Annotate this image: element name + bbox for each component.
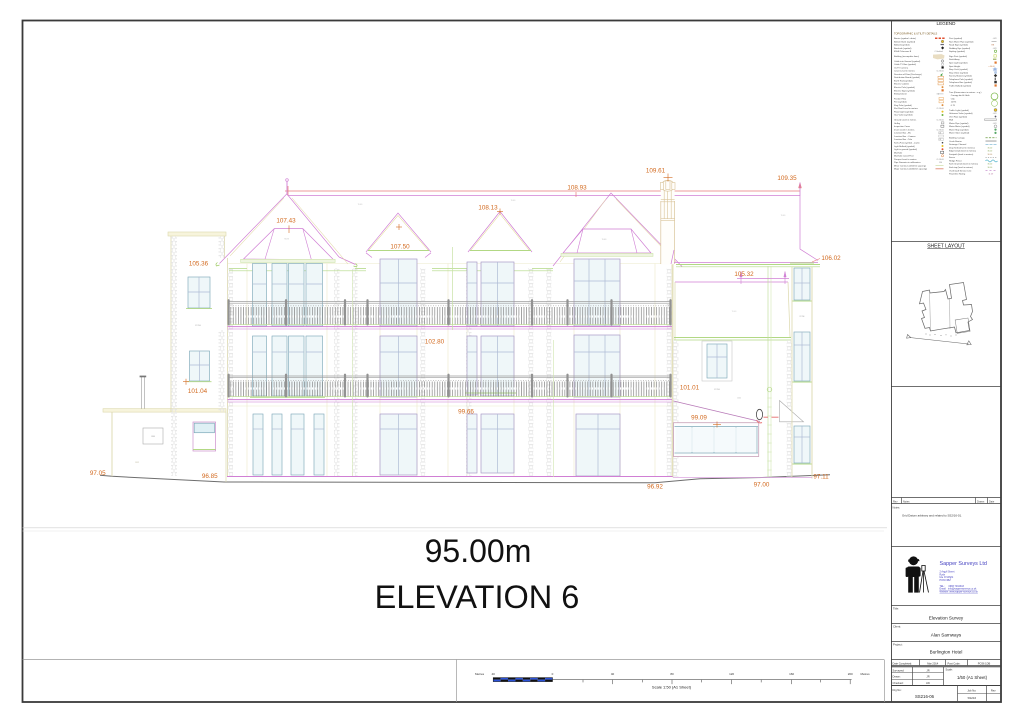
svg-text:Bottom Bank (symbol): Bottom Bank (symbol) <box>894 40 915 43</box>
svg-text:Junction Box - Tele: Junction Box - Tele <box>894 138 913 141</box>
svg-text:97.05: 97.05 <box>90 470 106 477</box>
svg-text:Kerb+Post (symbol - each): Kerb+Post (symbol - each) <box>894 142 920 145</box>
svg-text:Invert Level in metres: Invert Level in metres <box>894 128 914 131</box>
svg-text:Mar 2014: Mar 2014 <box>927 661 939 665</box>
svg-text:Water Stop (symbol): Water Stop (symbol) <box>949 128 969 131</box>
svg-text:Cover Level in metres: Cover Level in metres <box>894 70 915 73</box>
svg-text:36.00: 36.00 <box>988 151 993 153</box>
svg-text:Fence: Fence <box>949 157 956 159</box>
svg-text:Stop Valve (symbol): Stop Valve (symbol) <box>949 71 968 74</box>
svg-text:Feeder Pillar: Feeder Pillar <box>894 98 906 100</box>
svg-text:LEGEND: LEGEND <box>937 21 957 26</box>
svg-text:ELEVATION 6: ELEVATION 6 <box>375 579 580 615</box>
svg-text:Sapper Surveys Ltd: Sapper Surveys Ltd <box>940 561 987 567</box>
svg-text:Metres: Metres <box>861 672 871 676</box>
svg-text:Rain Water Pipe (symbol): Rain Water Pipe (symbol) <box>949 40 974 43</box>
svg-text:Sapling (symbol): Sapling (symbol) <box>949 51 965 53</box>
svg-text:Hedge Fence: Hedge Fence <box>949 160 963 162</box>
svg-text:Canopy dia Ht Girth: Canopy dia Ht Girth <box>949 94 970 97</box>
svg-text:Manhole: Manhole <box>894 152 903 154</box>
svg-text:108.93: 108.93 <box>567 185 587 192</box>
svg-text:Major Contours (2000mm spacing: Major Contours (2000mm spacing) <box>894 168 927 171</box>
svg-text:Flood Light (symbol): Flood Light (symbol) <box>894 110 914 113</box>
svg-text:Water Valve (symbol): Water Valve (symbol) <box>949 132 970 135</box>
svg-text:Elevation Survey: Elevation Survey <box>929 616 964 621</box>
svg-text:Light in ground (symbol): Light in ground (symbol) <box>894 148 917 151</box>
svg-text:Pipe Diameter in millimetres: Pipe Diameter in millimetres <box>894 161 921 164</box>
svg-text:Drawn:: Drawn: <box>893 675 901 679</box>
svg-text:Junction Box - Elc: Junction Box - Elc <box>894 132 912 135</box>
svg-text:160: 160 <box>789 672 794 676</box>
svg-text:96.85: 96.85 <box>202 473 218 480</box>
svg-text:107.43: 107.43 <box>276 218 296 225</box>
svg-text:x 36.00: x 36.00 <box>989 66 995 68</box>
svg-text:Telephone Box (symbol): Telephone Box (symbol) <box>949 82 972 84</box>
svg-text:Alan Samways: Alan Samways <box>931 633 962 638</box>
svg-text:80: 80 <box>670 672 674 676</box>
svg-text:Surveyed:: Surveyed: <box>893 668 905 672</box>
svg-text:JB: JB <box>939 139 941 141</box>
svg-text:Soak Away: Soak Away <box>949 58 960 61</box>
svg-text:Borehole (symbol): Borehole (symbol) <box>894 48 912 50</box>
svg-text:1952: 1952 <box>135 462 139 464</box>
svg-text:Junction Box - Comms: Junction Box - Comms <box>894 135 916 138</box>
svg-text:Overhead/ Service Line: Overhead/ Service Line <box>949 170 972 172</box>
svg-text:Direction of Flow (Discharge): Direction of Flow (Discharge) <box>894 73 922 76</box>
svg-text:BTelE Telecoms B: BTelE Telecoms B <box>894 51 912 53</box>
svg-text:95.00m: 95.00m <box>425 533 532 569</box>
svg-text:Spot Light (symbol): Spot Light (symbol) <box>949 61 968 64</box>
svg-text:Grid Datum arbitrary and relat: Grid Datum arbitrary and related to SS2/… <box>902 514 962 518</box>
svg-text:Unknown Valve (symbol): Unknown Valve (symbol) <box>949 113 973 115</box>
svg-text:Project:: Project: <box>893 643 903 647</box>
svg-text:CL 36.00: CL 36.00 <box>937 71 944 73</box>
svg-text:+W3: +W3 <box>993 48 997 50</box>
svg-text:Electric Pole (symbol): Electric Pole (symbol) <box>894 86 915 89</box>
svg-text:+W3: +W3 <box>993 38 997 40</box>
svg-text:Light Bollard (symbol): Light Bollard (symbol) <box>894 145 915 148</box>
svg-text:Traffic Light (symbol): Traffic Light (symbol) <box>949 109 969 112</box>
svg-text:PO33 3BZ: PO33 3BZ <box>940 579 952 582</box>
svg-text:108.13: 108.13 <box>478 205 498 212</box>
svg-text:10/75: 10/75 <box>949 102 957 104</box>
svg-text:Fire (symbol): Fire (symbol) <box>894 102 907 104</box>
svg-text:Parapet Level in metres: Parapet Level in metres <box>894 158 917 161</box>
svg-text:JR: JR <box>926 675 929 679</box>
svg-text:Traffic Bollard (symbol): Traffic Bollard (symbol) <box>949 85 971 87</box>
svg-text:11 kV: 11 kV <box>989 174 994 176</box>
svg-text:CL 36.00: CL 36.00 <box>937 120 944 122</box>
svg-text:99.66: 99.66 <box>458 409 474 416</box>
svg-text:1500: 1500 <box>737 398 741 400</box>
svg-text:Edge Detail (level in metres): Edge Detail (level in metres) <box>949 150 976 153</box>
svg-text:Barrier (symbol - drain): Barrier (symbol - drain) <box>894 38 916 40</box>
svg-text:Minor Contours (250mm spacing): Minor Contours (250mm spacing) <box>894 164 926 167</box>
svg-text:Building Canopy: Building Canopy <box>949 138 966 140</box>
svg-text:Post Code:: Post Code: <box>948 661 961 665</box>
svg-text:106.02: 106.02 <box>821 255 841 262</box>
svg-text:PO36 1DB: PO36 1DB <box>978 661 991 665</box>
svg-text:Bollard (symbol): Bollard (symbol) <box>894 45 910 47</box>
svg-text:97.00: 97.00 <box>754 482 770 489</box>
svg-text:Crash Barrier: Crash Barrier <box>949 141 962 143</box>
svg-text:Scale 1:50 (A1 Sheet): Scale 1:50 (A1 Sheet) <box>652 685 692 690</box>
svg-text:Gas Valve (symbol): Gas Valve (symbol) <box>894 115 913 117</box>
svg-text:Rev:: Rev: <box>991 688 997 692</box>
svg-text:Job No:: Job No: <box>967 688 976 692</box>
svg-text:LW: LW <box>926 681 930 685</box>
svg-text:CL 36.00: CL 36.00 <box>937 108 944 110</box>
svg-text:Rodding Eye (symbol): Rodding Eye (symbol) <box>949 48 970 50</box>
svg-text:Wall: Wall <box>949 120 954 122</box>
svg-text:Water Meter (symbol): Water Meter (symbol) <box>949 125 970 128</box>
svg-text:Burlington Hotel: Burlington Hotel <box>930 650 963 655</box>
svg-text:120: 120 <box>729 672 734 676</box>
svg-text:101.01: 101.01 <box>680 385 700 392</box>
svg-text:STONE: STONE <box>799 316 804 318</box>
svg-text:40: 40 <box>492 672 496 676</box>
svg-text:Manhole raised Post: Manhole raised Post <box>894 155 914 158</box>
svg-text:Date Completed:: Date Completed: <box>893 661 913 665</box>
svg-text:STONE: STONE <box>195 325 202 327</box>
svg-text:Cable into Ground (symbol): Cable into Ground (symbol) <box>894 60 920 63</box>
svg-text:99.09: 99.09 <box>691 415 707 422</box>
svg-text:Building (incomplete lines): Building (incomplete lines) <box>894 55 919 58</box>
svg-text:Metres: Metres <box>475 672 485 676</box>
svg-text:1/50 (A1 Sheet): 1/50 (A1 Sheet) <box>957 675 988 680</box>
svg-text:Client:: Client: <box>893 625 901 629</box>
svg-text:Kerb top (level in metres): Kerb top (level in metres) <box>949 166 973 169</box>
svg-text:200: 200 <box>848 672 853 676</box>
svg-text:Water Pipe (symbol): Water Pipe (symbol) <box>949 122 969 125</box>
svg-text:109.35: 109.35 <box>777 175 797 182</box>
svg-text:36.00: 36.00 <box>988 154 993 156</box>
svg-text:+W3: +W3 <box>993 123 997 125</box>
svg-text:Vent Pipe (symbol): Vent Pipe (symbol) <box>949 115 967 118</box>
svg-text:C.Verified: C.Verified <box>935 50 943 53</box>
svg-text:105.36: 105.36 <box>189 261 209 268</box>
svg-text:Stop Cock (symbol): Stop Cock (symbol) <box>949 68 968 71</box>
svg-text:SS216: SS216 <box>967 696 976 700</box>
svg-text:Checked:: Checked: <box>893 681 904 685</box>
svg-text:150: 150 <box>939 162 942 164</box>
svg-text:107.50: 107.50 <box>390 244 410 251</box>
svg-text:TOPOGRAPHIC & UTILITY DETAILS: TOPOGRAPHIC & UTILITY DETAILS <box>894 32 938 36</box>
svg-text:Title:: Title: <box>893 607 899 611</box>
svg-text:0.75: 0.75 <box>949 105 956 107</box>
svg-text:Flat Roof Level in metres: Flat Roof Level in metres <box>894 107 918 110</box>
svg-text:102.80: 102.80 <box>425 339 445 346</box>
svg-text:Post (symbol): Post (symbol) <box>949 37 962 40</box>
svg-text:Scale:: Scale: <box>946 668 953 672</box>
svg-text:Flag Pole (symbol): Flag Pole (symbol) <box>894 105 912 107</box>
svg-text:Cable TV Box (symbol): Cable TV Box (symbol) <box>894 64 916 66</box>
svg-text:JR: JR <box>926 668 929 672</box>
svg-text:97.11: 97.11 <box>813 474 829 481</box>
svg-text:SS216-06: SS216-06 <box>915 694 935 699</box>
svg-text:Drg No:: Drg No: <box>893 688 902 692</box>
svg-text:105.32: 105.32 <box>734 271 754 278</box>
svg-text:36.00: 36.00 <box>988 147 993 149</box>
svg-text:36.00: 36.00 <box>988 164 993 166</box>
svg-text:Survey Station (symbol): Survey Station (symbol) <box>949 75 972 78</box>
svg-text:Notes: Notes <box>903 500 910 503</box>
svg-text:101.04: 101.04 <box>188 388 208 395</box>
svg-text:Ground Level in metres: Ground Level in metres <box>894 119 916 122</box>
svg-text:Kerb Channel (level in metres): Kerb Channel (level in metres) <box>949 163 978 166</box>
svg-text:36.00: 36.00 <box>988 167 993 169</box>
svg-text:Road Sign (symbol): Road Sign (symbol) <box>949 45 968 47</box>
svg-text:109.61: 109.61 <box>646 168 666 175</box>
svg-text:Gulley: Gulley <box>894 123 901 125</box>
svg-text:Sign Post (symbol): Sign Post (symbol) <box>949 55 967 58</box>
svg-text:Earth Rod (symbol): Earth Rod (symbol) <box>894 79 913 82</box>
svg-text:Date: Date <box>989 500 995 503</box>
svg-text:JB: JB <box>939 132 941 134</box>
svg-text:Electric Cabinte: Electric Cabinte <box>894 83 910 86</box>
svg-text:Drainage Channel: Drainage Channel <box>949 144 967 146</box>
svg-text:Powerline Rating: Powerline Rating <box>949 173 966 176</box>
svg-text:Embankment: Embankment <box>894 93 907 96</box>
svg-text:Drop Kerb (level in metres): Drop Kerb (level in metres) <box>949 146 975 149</box>
svg-text:CL 36.00: CL 36.00 <box>937 159 944 161</box>
svg-text:Inspection Cover: Inspection Cover <box>894 125 910 128</box>
svg-text:40: 40 <box>611 672 615 676</box>
svg-text:Rev: Rev <box>893 500 898 503</box>
svg-text:Drawn: Drawn <box>977 500 985 503</box>
svg-text:Website: www.sapper-surveys.co: Website: www.sapper-surveys.co.uk <box>940 591 979 594</box>
svg-text:Telephone Pole (symbol): Telephone Pole (symbol) <box>949 79 973 81</box>
svg-text:STONE: STONE <box>714 389 721 391</box>
svg-text:Oak: Oak <box>949 98 956 100</box>
svg-text:Spot Height: Spot Height <box>949 65 961 68</box>
svg-text:Notes:: Notes: <box>893 505 901 509</box>
svg-text:Footpath (level in metres): Footpath (level in metres) <box>949 153 974 156</box>
svg-text:96.92: 96.92 <box>647 484 663 491</box>
svg-text:+W3: +W3 <box>993 113 997 115</box>
svg-text:CCTV Camera: CCTV Camera <box>894 67 909 69</box>
svg-text:Distribution Board (symbol): Distribution Board (symbol) <box>894 76 920 79</box>
svg-text:Tree (Dimensions in metres - e: Tree (Dimensions in metres - e.g.) <box>949 91 982 94</box>
svg-text:SHEET LAYOUT: SHEET LAYOUT <box>927 244 965 250</box>
svg-text:Electric Sign (symbol): Electric Sign (symbol) <box>894 89 915 92</box>
svg-text:CL 36.00: CL 36.00 <box>937 129 944 131</box>
